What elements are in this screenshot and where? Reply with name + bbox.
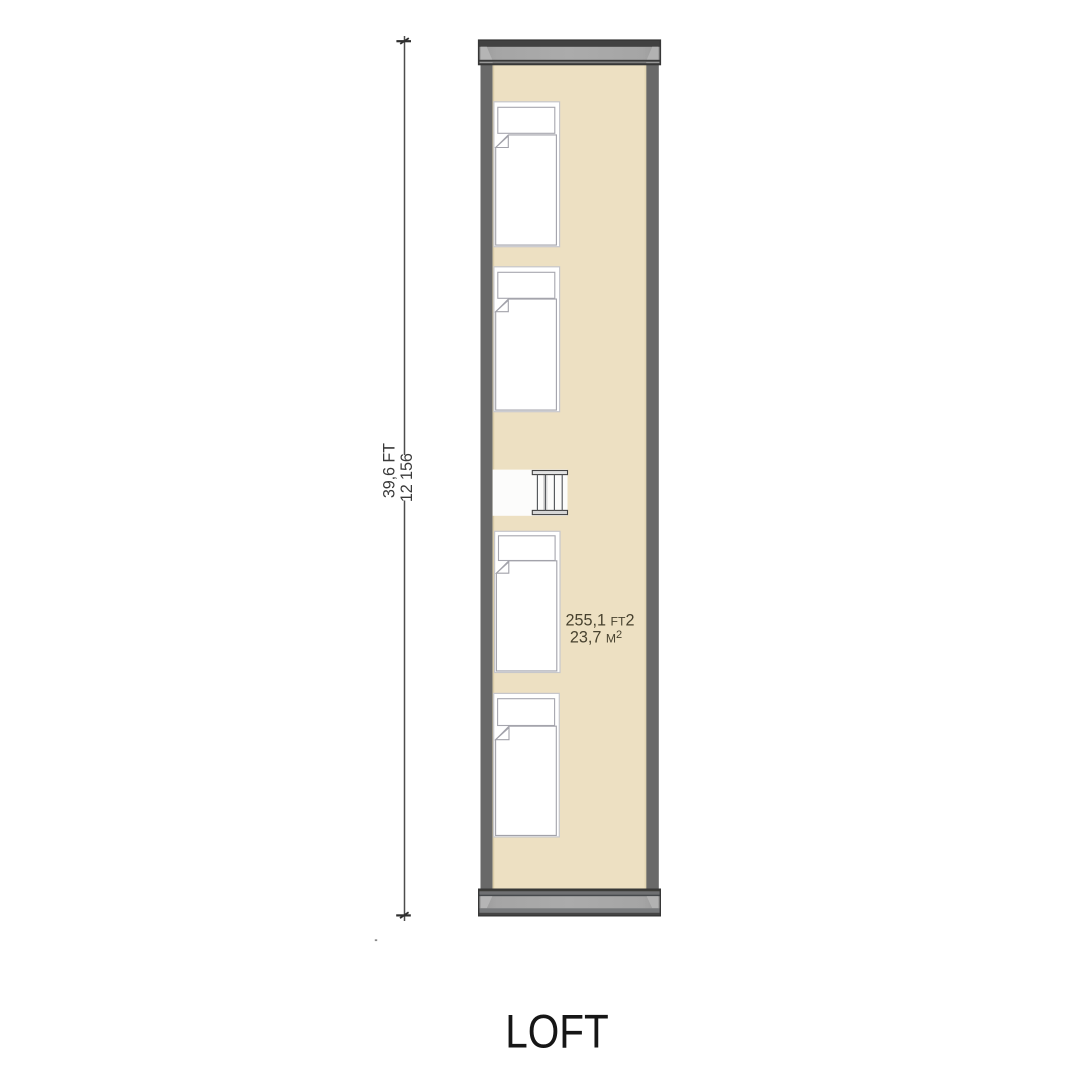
svg-text:12 156: 12 156 [398, 453, 416, 502]
svg-text:LOFT: LOFT [505, 1006, 609, 1059]
svg-text:39,6 FT: 39,6 FT [381, 443, 399, 498]
svg-text:255,1 FT2: 255,1 FT2 [566, 612, 635, 630]
svg-text:23,7 M2: 23,7 M2 [570, 628, 622, 646]
